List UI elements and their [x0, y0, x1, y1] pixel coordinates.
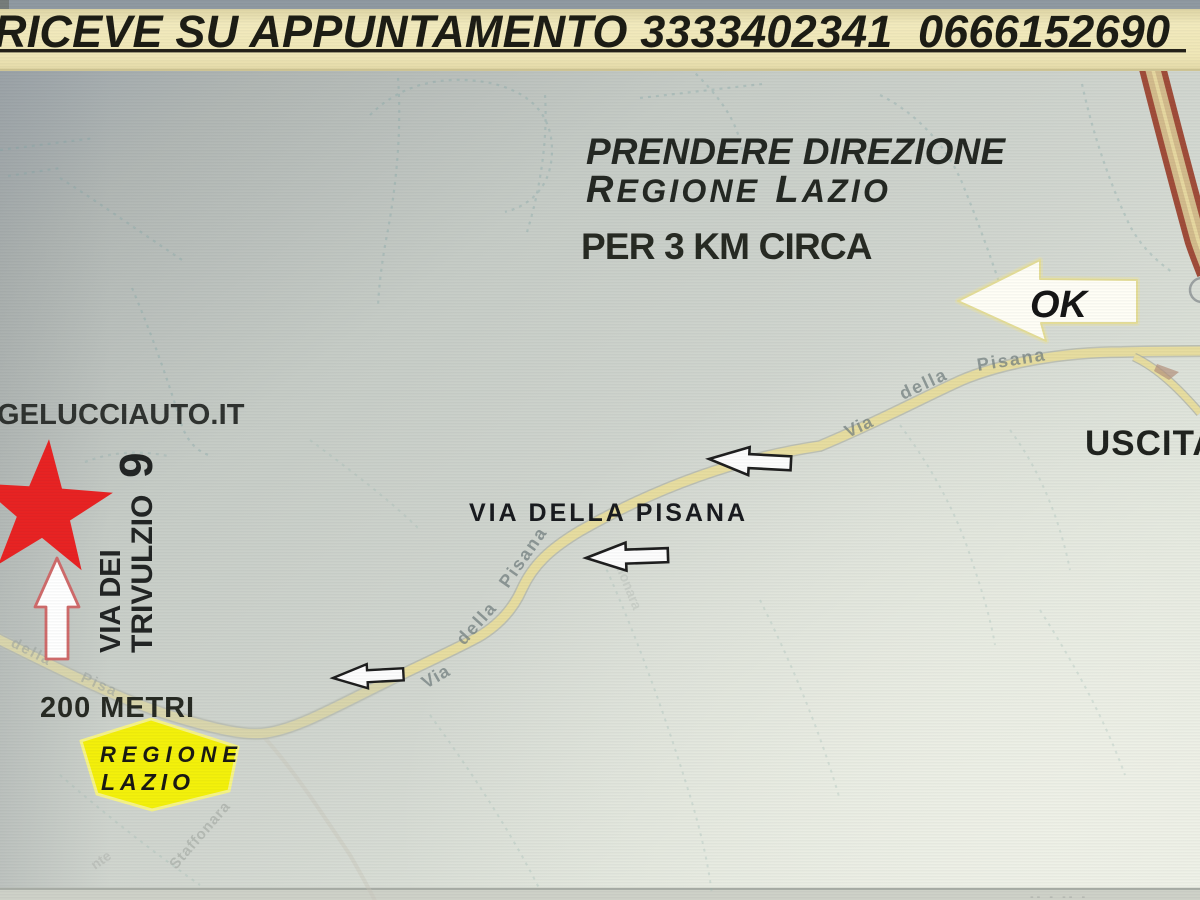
svg-text:LAZIO: LAZIO: [101, 769, 190, 795]
svg-text:200 METRI: 200 METRI: [40, 692, 195, 724]
svg-text:USCITA: USCITA: [1085, 424, 1200, 463]
svg-text:PRENDERE DIREZIONE: PRENDERE DIREZIONE: [586, 131, 1006, 172]
svg-text:REGIONE LAZIO: REGIONE LAZIO: [586, 169, 891, 211]
svg-text:PER 3 KM CIRCA: PER 3 KM CIRCA: [581, 226, 873, 267]
svg-text:OK: OK: [1030, 284, 1090, 326]
svg-text:-- - -- -: -- - -- -: [1030, 891, 1088, 900]
svg-text:GELUCCIAUTO.IT: GELUCCIAUTO.IT: [0, 399, 245, 431]
svg-text:VIA DEI: VIA DEI: [95, 549, 127, 653]
